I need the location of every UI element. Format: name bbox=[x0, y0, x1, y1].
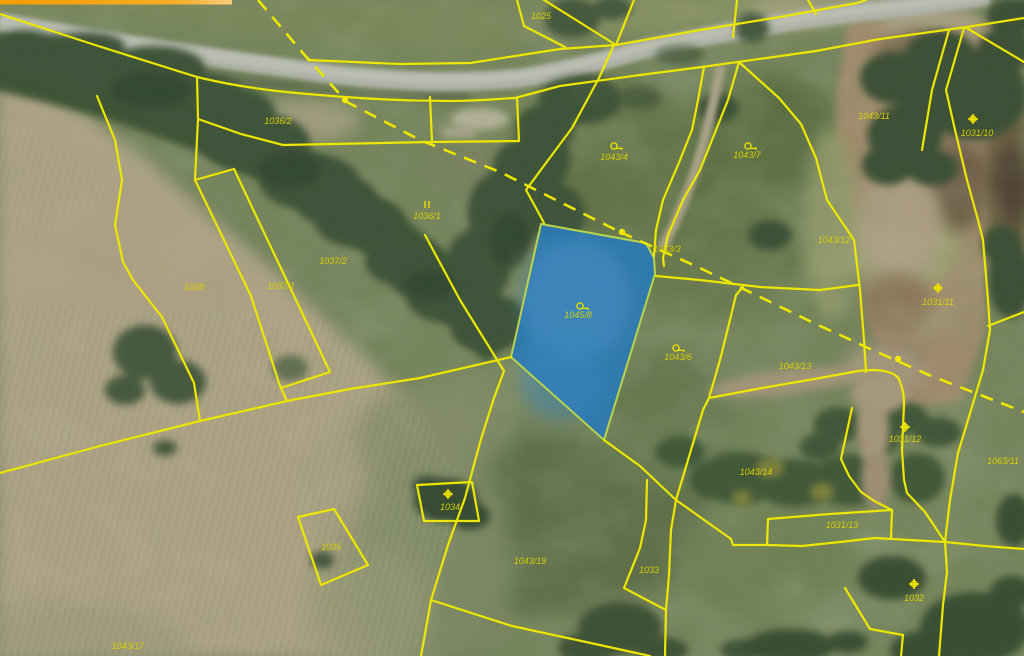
svg-text:1033: 1033 bbox=[639, 565, 659, 575]
svg-text:1043/6: 1043/6 bbox=[664, 352, 692, 362]
svg-text:1025: 1025 bbox=[531, 11, 552, 21]
svg-text:1037/2: 1037/2 bbox=[319, 256, 347, 266]
svg-text:1036/1: 1036/1 bbox=[413, 211, 441, 221]
svg-text:1031/13: 1031/13 bbox=[826, 520, 859, 530]
svg-text:1043/17: 1043/17 bbox=[112, 641, 146, 651]
svg-text:1043/13: 1043/13 bbox=[779, 361, 812, 371]
svg-text:1035: 1035 bbox=[321, 542, 342, 552]
svg-text:1045/8: 1045/8 bbox=[564, 310, 592, 320]
svg-text:1031/11: 1031/11 bbox=[922, 297, 954, 307]
svg-text:1031/12: 1031/12 bbox=[889, 434, 922, 444]
svg-text:1032: 1032 bbox=[904, 593, 924, 603]
svg-text:1034: 1034 bbox=[440, 502, 460, 512]
svg-text:1043/4: 1043/4 bbox=[600, 152, 628, 162]
svg-text:1036/2: 1036/2 bbox=[264, 116, 292, 126]
svg-text:1043/12: 1043/12 bbox=[818, 235, 851, 245]
svg-text:1043/7: 1043/7 bbox=[733, 150, 762, 160]
svg-text:1037/1: 1037/1 bbox=[267, 281, 295, 291]
svg-text:1031/10: 1031/10 bbox=[961, 128, 994, 138]
svg-text:1038: 1038 bbox=[184, 282, 204, 292]
svg-text:1043/11: 1043/11 bbox=[858, 111, 890, 121]
svg-text:1063/11: 1063/11 bbox=[987, 456, 1019, 466]
svg-text:1043/19: 1043/19 bbox=[514, 556, 547, 566]
svg-text:1043/3: 1043/3 bbox=[653, 244, 681, 254]
svg-text:1043/14: 1043/14 bbox=[740, 467, 773, 477]
